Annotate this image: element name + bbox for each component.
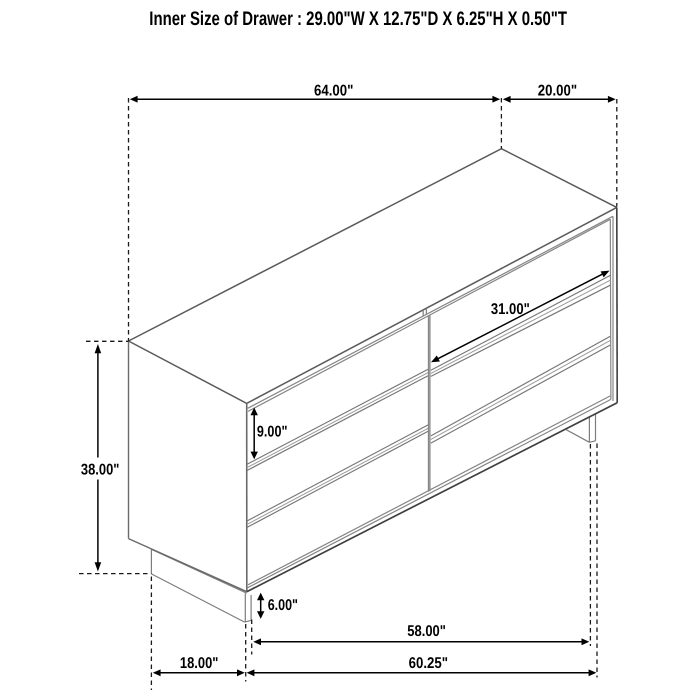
svg-text:60.25": 60.25" (409, 655, 448, 672)
svg-text:9.00": 9.00" (257, 423, 288, 440)
svg-text:Inner Size of Drawer : 29.00"W: Inner Size of Drawer : 29.00"W X 12.75"D… (149, 8, 567, 30)
svg-text:58.00": 58.00" (407, 623, 446, 640)
svg-text:64.00": 64.00" (314, 83, 353, 100)
svg-text:38.00": 38.00" (81, 462, 120, 479)
svg-text:18.00": 18.00" (180, 655, 219, 672)
svg-text:6.00": 6.00" (268, 597, 298, 614)
svg-text:31.00": 31.00" (491, 301, 530, 318)
svg-text:20.00": 20.00" (538, 82, 577, 99)
